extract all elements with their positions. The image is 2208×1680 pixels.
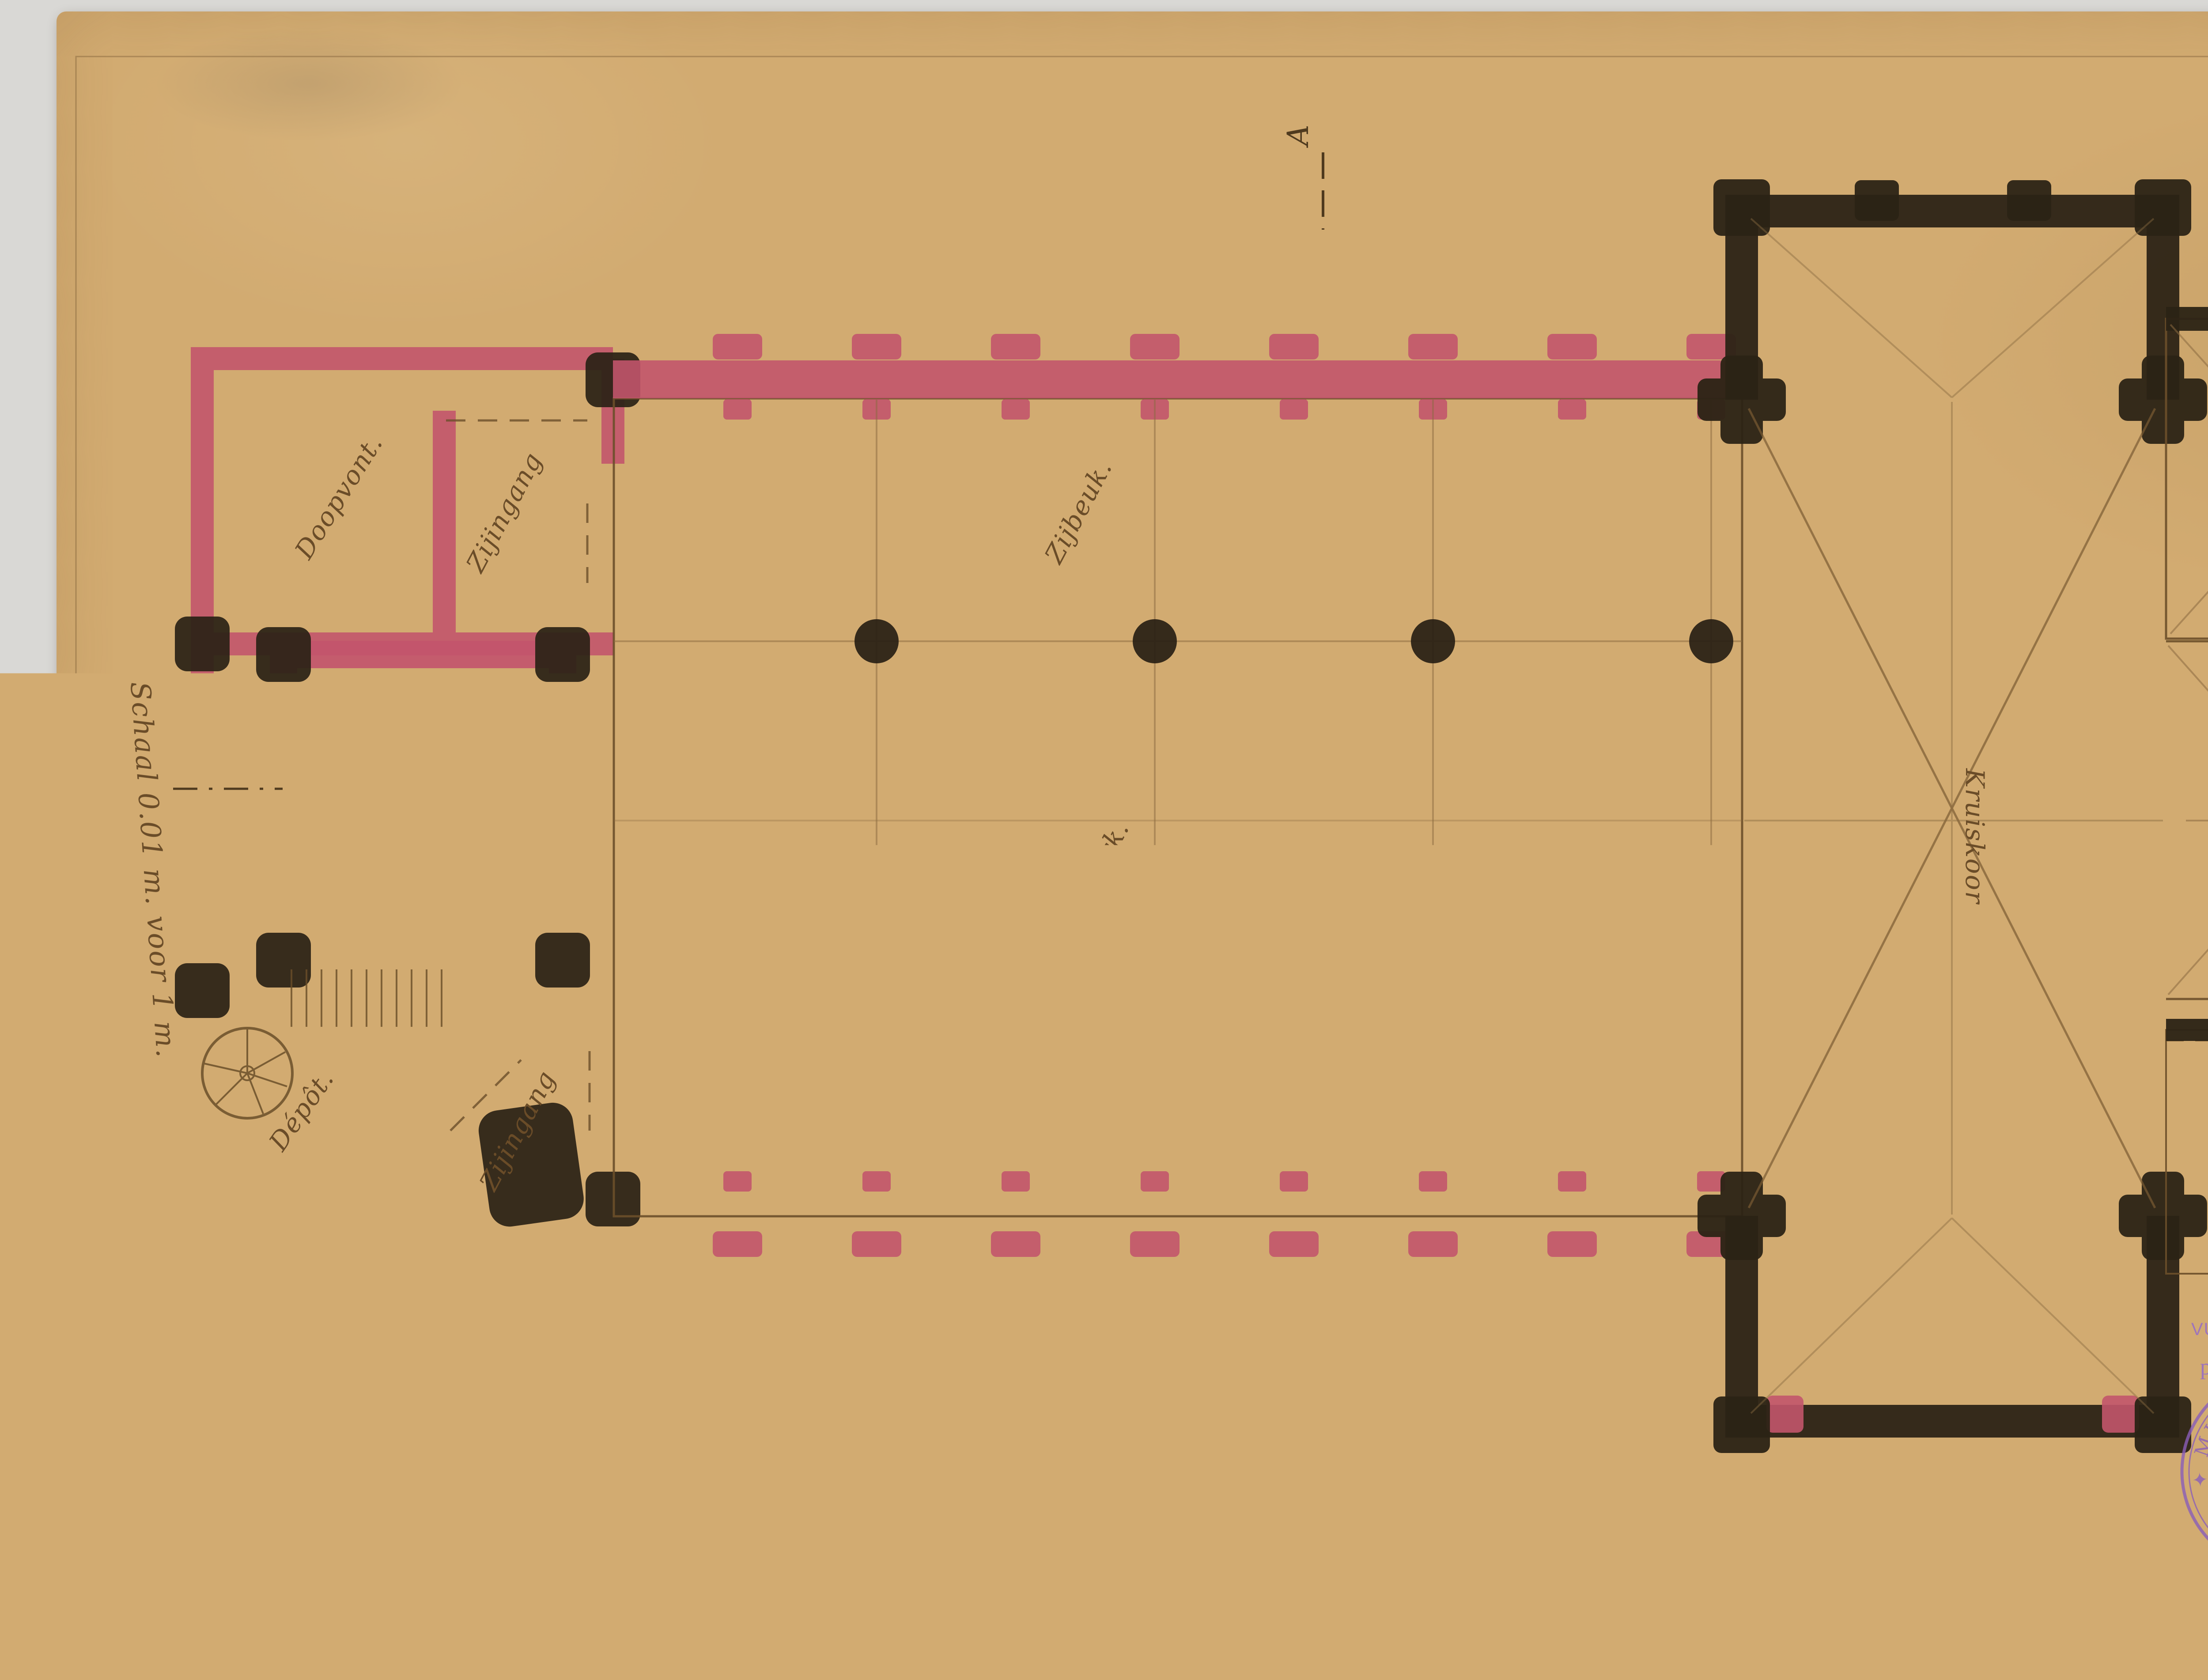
room-label-ingang: Ingang xyxy=(333,764,414,861)
west-block: Doopvont. Zijingang Ingang Dépôt. Zijing… xyxy=(175,352,640,1273)
room-label-kerk: Kerk. xyxy=(1074,816,1135,896)
section-marker-a: A xyxy=(1281,125,1315,148)
spiral-stair-icon xyxy=(202,1028,292,1118)
council-role-right: De Voorzitter, xyxy=(752,1490,900,1518)
transept: Kruiskoor xyxy=(1698,179,2207,1453)
registry-blad2-value: Zonder xyxy=(1050,1404,1157,1442)
room-label-kruiskoor: Kruiskoor xyxy=(1960,768,1990,905)
room-label-zijbeuk-south: Zijbeuk. xyxy=(1038,1037,1118,1152)
bay-grid xyxy=(614,400,1742,1215)
nave: Zijbeuk. Kerk. Zijbeuk. xyxy=(613,334,1743,1257)
council-line1: Gezien door den Koninklijken Raad xyxy=(508,1314,891,1345)
justice-fr-line2: pour être annexé à l'arrêté royal xyxy=(2200,1354,2208,1380)
choir-diagonals xyxy=(2168,646,2208,995)
room-label-zijbeuk-north: Zijbeuk. xyxy=(1038,454,1118,569)
registry-den-label: DEN xyxy=(945,1351,1006,1379)
justice-fr-line1: VU PAR NOUS, MINISTRE DE LA JUSTICE xyxy=(2191,1320,2208,1339)
scale-note: Schaal 0.01 m. voor 1 m. xyxy=(124,681,182,1059)
room-label-doopvont: Doopvont. xyxy=(289,429,389,564)
room-label-zijingang-north: Zijingang xyxy=(460,447,548,578)
tower-inner-line xyxy=(312,683,534,932)
registry-blad2-label: BLAD xyxy=(946,1416,1022,1444)
scanned-plan-sheet: Doopvont. Zijingang Ingang Dépôt. Zijing… xyxy=(0,0,2208,1680)
tower-walls xyxy=(284,655,563,960)
section-marker-b: B xyxy=(1282,1544,1316,1566)
nave-pink-walls xyxy=(613,334,1743,1257)
council-line4: verslag van xyxy=(478,1459,599,1488)
registry-deel-label: DEEL xyxy=(945,1383,1022,1411)
registry-vak-value: 12. xyxy=(1288,1368,1337,1403)
registry-deel-value: 208 xyxy=(1016,1375,1075,1409)
registry-vak-label: , VAK xyxy=(1195,1379,1272,1407)
